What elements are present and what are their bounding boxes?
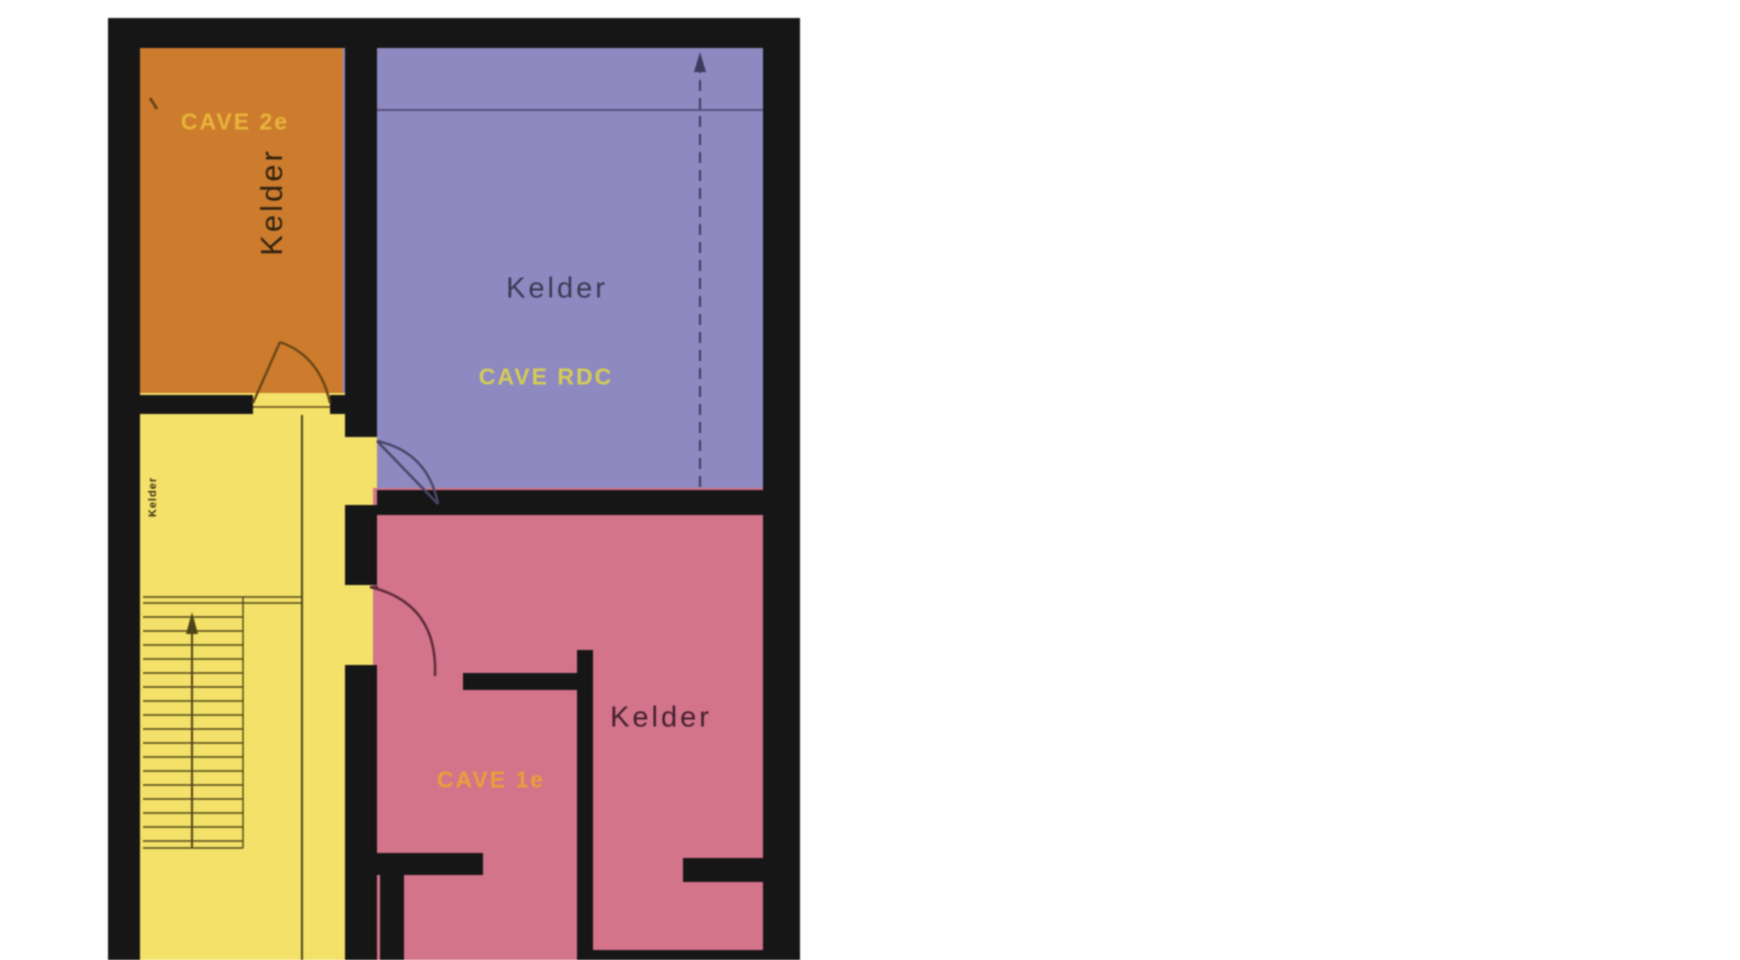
labels-layer: CAVE 2e Kelder Kelder CAVE RDC Kelder CA… <box>108 18 800 960</box>
label-cave-1e-fr: CAVE 1e <box>437 767 545 794</box>
label-hallway-kelder: Kelder <box>147 477 159 517</box>
floor-plan: CAVE 2e Kelder Kelder CAVE RDC Kelder CA… <box>108 18 800 960</box>
label-cave-rdc-fr: CAVE RDC <box>479 364 613 391</box>
label-cave-rdc-kelder: Kelder <box>506 273 608 306</box>
label-cave-1e-kelder: Kelder <box>610 702 712 735</box>
label-cave-2e-fr: CAVE 2e <box>181 109 289 136</box>
label-cave-2e-kelder: Kelder <box>254 148 290 256</box>
